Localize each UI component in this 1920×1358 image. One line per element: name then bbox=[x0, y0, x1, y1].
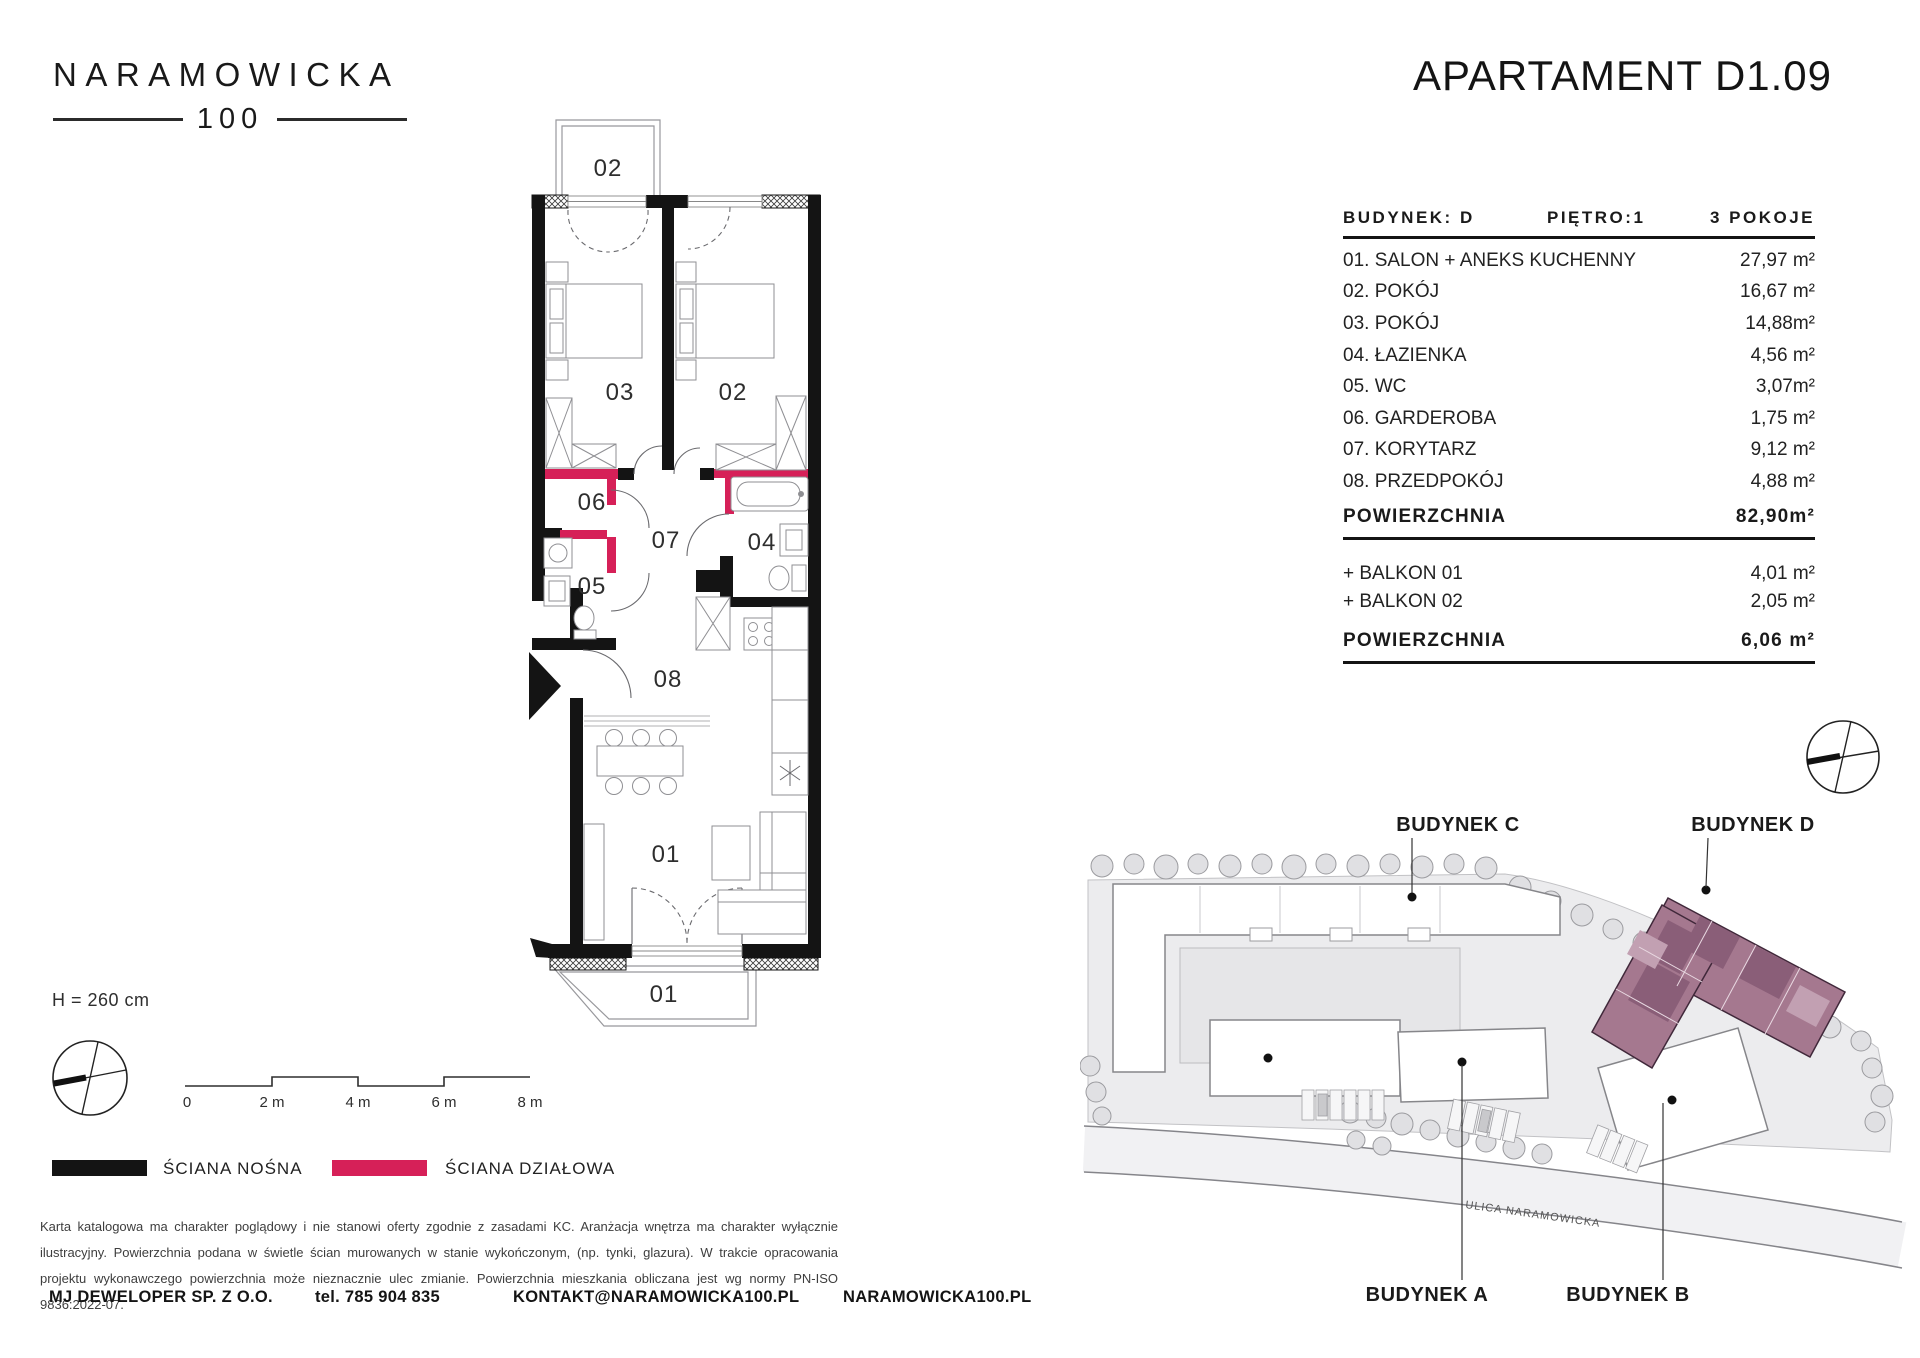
label-building-a: BUDYNEK A bbox=[1366, 1284, 1489, 1306]
bathroom-sink bbox=[780, 524, 808, 556]
building-a bbox=[1398, 1028, 1548, 1102]
label-building-c: BUDYNEK C bbox=[1396, 814, 1519, 836]
floor-plan: 02 03 02 06 07 05 04 08 01 01 bbox=[420, 95, 850, 1040]
wc-toilet bbox=[574, 606, 596, 639]
room-label-07: 07 bbox=[652, 527, 681, 554]
logo-rule-left bbox=[53, 118, 183, 121]
wardrobe-room03 bbox=[546, 398, 616, 468]
room-name: 01. SALON + ANEKS KUCHENNY bbox=[1343, 250, 1636, 272]
page-title: APARTAMENT D1.09 bbox=[1413, 52, 1813, 100]
scale-tick-6m: 6 m bbox=[431, 1094, 456, 1111]
room-area: 9,12 m² bbox=[1751, 439, 1815, 461]
catalog-card-page: NARAMOWICKA 100 APARTAMENT D1.09 BUDYNEK… bbox=[0, 0, 1920, 1358]
tv-sideboard bbox=[584, 824, 604, 940]
wc-sink bbox=[544, 576, 570, 606]
spec-floor: PIĘTRO:1 bbox=[1547, 208, 1645, 228]
balcony-bottom-label: 01 bbox=[650, 981, 679, 1008]
legend-swatch-partition bbox=[332, 1160, 427, 1176]
room-area: 4,56 m² bbox=[1751, 345, 1815, 367]
room-name: 08. PRZEDPOKÓJ bbox=[1343, 471, 1504, 493]
dining-table bbox=[597, 730, 683, 795]
spec-building: BUDYNEK: D bbox=[1343, 208, 1475, 228]
logo-number-row: 100 bbox=[53, 103, 407, 136]
balcony-label: + BALKON 01 bbox=[1343, 563, 1463, 585]
wardrobe-room02 bbox=[716, 396, 806, 470]
label-building-d: BUDYNEK D bbox=[1691, 814, 1814, 836]
logo-number: 100 bbox=[183, 103, 277, 136]
footer-email-link[interactable]: KONTAKT@NARAMOWICKA100.PL bbox=[513, 1288, 799, 1307]
balcony-top-label: 02 bbox=[594, 155, 623, 182]
scale-tick-0: 0 bbox=[183, 1094, 191, 1111]
room-name: 07. KORYTARZ bbox=[1343, 439, 1476, 461]
room-label-04: 04 bbox=[748, 529, 777, 556]
total-label: POWIERZCHNIA bbox=[1343, 506, 1506, 528]
bathtub bbox=[731, 477, 808, 511]
spec-header-row: BUDYNEK: D PIĘTRO:1 3 POKOJE bbox=[1343, 200, 1815, 239]
balcony-total-label: POWIERZCHNIA bbox=[1343, 630, 1506, 652]
coffee-table bbox=[712, 826, 750, 880]
table-row: + BALKON 022,05 m² bbox=[1343, 588, 1815, 616]
footer-website-link[interactable]: NARAMOWICKA100.PL bbox=[843, 1288, 1031, 1307]
balcony-label: + BALKON 02 bbox=[1343, 591, 1463, 613]
room-label-02: 02 bbox=[719, 379, 748, 406]
room-name: 03. POKÓJ bbox=[1343, 313, 1439, 335]
room-label-03: 03 bbox=[606, 379, 635, 406]
label-building-b: BUDYNEK B bbox=[1566, 1284, 1689, 1306]
kitchen-cabinet bbox=[696, 597, 730, 650]
balcony-total-row: POWIERZCHNIA 6,06 m² bbox=[1343, 630, 1815, 664]
room-name: 02. POKÓJ bbox=[1343, 281, 1439, 303]
logo-name: NARAMOWICKA bbox=[53, 56, 407, 94]
site-map: ULICA NARAMOWICKA bbox=[1080, 690, 1920, 1340]
bed-room02 bbox=[676, 262, 774, 380]
balcony-area: 4,01 m² bbox=[1751, 563, 1815, 585]
spec-rooms-count: 3 POKOJE bbox=[1710, 208, 1815, 228]
table-row: + BALKON 014,01 m² bbox=[1343, 560, 1815, 588]
kitchen-counter bbox=[772, 607, 808, 795]
balcony-area: 2,05 m² bbox=[1751, 591, 1815, 613]
scale-tick-8m: 8 m bbox=[517, 1094, 542, 1111]
scale-bar: 0 2 m 4 m 6 m 8 m bbox=[180, 1065, 550, 1115]
ceiling-height-note: H = 260 cm bbox=[52, 990, 150, 1011]
room-label-05: 05 bbox=[578, 573, 607, 600]
footer-company: MJ DEWELOPER SP. Z O.O. bbox=[49, 1288, 273, 1307]
entrance-arrow-icon bbox=[529, 652, 561, 720]
table-row: 02. POKÓJ16,67 m² bbox=[1343, 277, 1815, 309]
room-label-08: 08 bbox=[654, 666, 683, 693]
room-area: 16,67 m² bbox=[1740, 281, 1815, 303]
room-area: 1,75 m² bbox=[1751, 408, 1815, 430]
room-list: 01. SALON + ANEKS KUCHENNY27,97 m² 02. P… bbox=[1343, 245, 1815, 498]
bed-room03 bbox=[546, 262, 642, 380]
legend-label-load-bearing: ŚCIANA NOŚNA bbox=[163, 1159, 303, 1179]
map-compass-icon bbox=[1807, 721, 1879, 793]
room-name: 04. ŁAZIENKA bbox=[1343, 345, 1467, 367]
table-row: 08. PRZEDPOKÓJ4,88 m² bbox=[1343, 466, 1815, 498]
room-label-06: 06 bbox=[578, 489, 607, 516]
legend-swatch-load-bearing bbox=[52, 1160, 147, 1176]
brand-logo: NARAMOWICKA 100 bbox=[53, 56, 407, 136]
total-value: 82,90m² bbox=[1736, 506, 1815, 528]
table-row: 05. WC3,07m² bbox=[1343, 371, 1815, 403]
bathroom-toilet bbox=[769, 565, 806, 591]
room-area: 4,88 m² bbox=[1751, 471, 1815, 493]
table-row: 04. ŁAZIENKA4,56 m² bbox=[1343, 340, 1815, 372]
room-area: 3,07m² bbox=[1756, 376, 1815, 398]
washing-machine bbox=[544, 538, 572, 568]
table-row: 03. POKÓJ14,88m² bbox=[1343, 308, 1815, 340]
balcony-list: + BALKON 014,01 m² + BALKON 022,05 m² bbox=[1343, 560, 1815, 616]
balcony-total-value: 6,06 m² bbox=[1741, 630, 1815, 652]
room-name: 05. WC bbox=[1343, 376, 1406, 398]
floor-threshold bbox=[584, 716, 710, 726]
room-label-01: 01 bbox=[652, 841, 681, 868]
room-area: 27,97 m² bbox=[1740, 250, 1815, 272]
apartment-spec-table: BUDYNEK: D PIĘTRO:1 3 POKOJE 01. SALON +… bbox=[1343, 200, 1815, 239]
north-compass-icon bbox=[42, 1030, 142, 1130]
room-area: 14,88m² bbox=[1745, 313, 1815, 335]
legend-label-partition: ŚCIANA DZIAŁOWA bbox=[445, 1159, 615, 1179]
table-row: 06. GARDEROBA1,75 m² bbox=[1343, 403, 1815, 435]
footer-phone: tel. 785 904 835 bbox=[315, 1288, 440, 1307]
table-row: 01. SALON + ANEKS KUCHENNY27,97 m² bbox=[1343, 245, 1815, 277]
logo-rule-right bbox=[277, 118, 407, 121]
scale-tick-4m: 4 m bbox=[345, 1094, 370, 1111]
table-row: 07. KORYTARZ9,12 m² bbox=[1343, 435, 1815, 467]
scale-tick-2m: 2 m bbox=[259, 1094, 284, 1111]
room-name: 06. GARDEROBA bbox=[1343, 408, 1496, 430]
total-area-row: POWIERZCHNIA 82,90m² bbox=[1343, 506, 1815, 540]
